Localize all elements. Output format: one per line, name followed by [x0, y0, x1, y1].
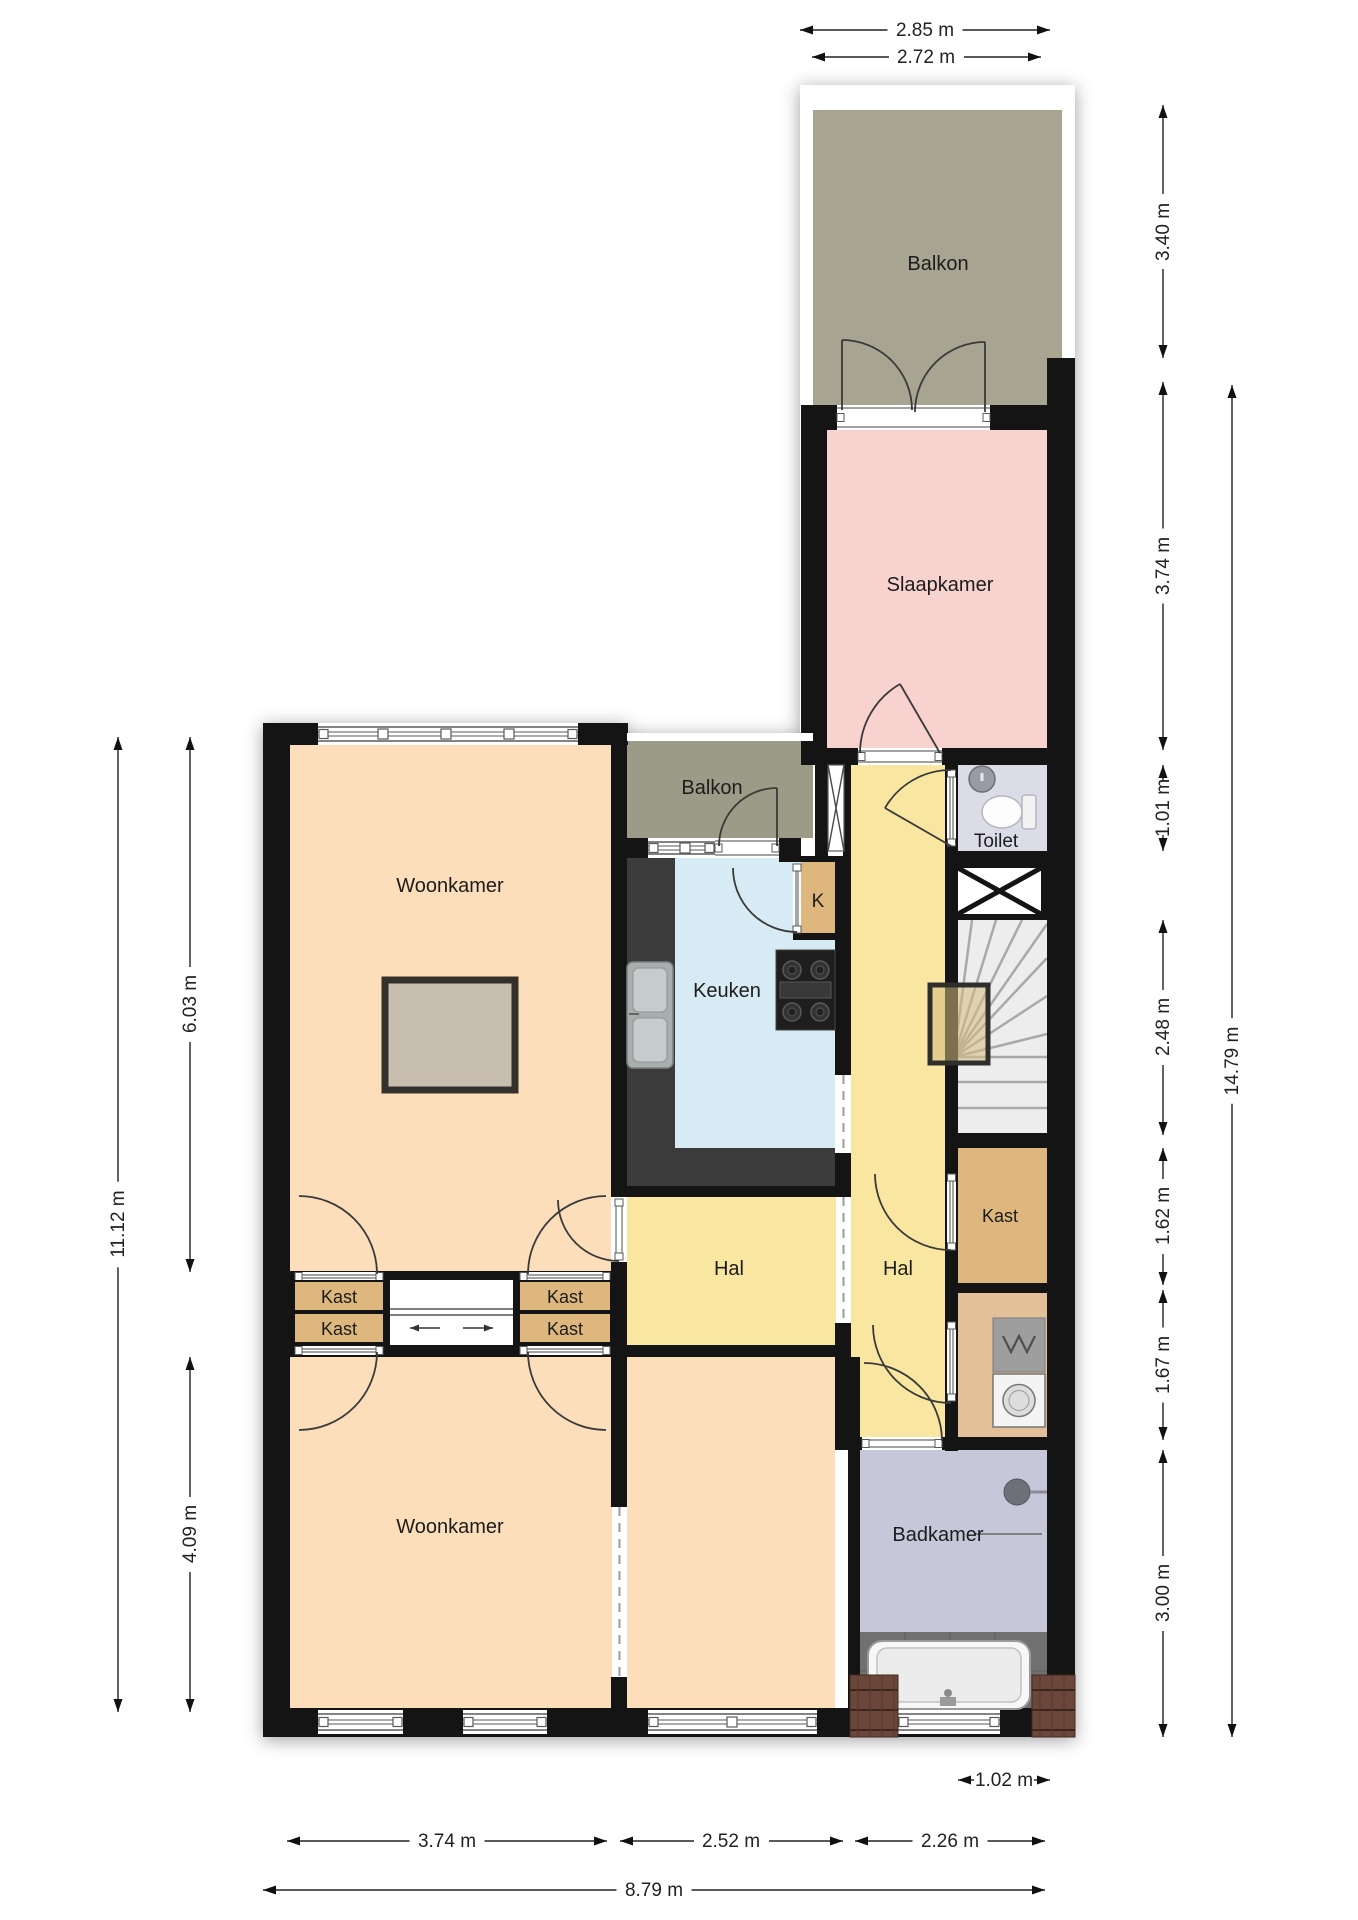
laundry-fixtures [993, 1318, 1045, 1427]
label-kast: Kast [321, 1319, 357, 1339]
door-sill [947, 1174, 956, 1250]
open-passage [836, 1197, 851, 1323]
dimension-text: 4.09 m [180, 1505, 201, 1563]
balcony-border [800, 85, 813, 405]
dimension-300m: 3.00 m [1153, 1450, 1174, 1737]
dimension-text: 2.52 m [702, 1831, 760, 1852]
dimension-text: 1.67 m [1153, 1336, 1174, 1394]
window [463, 1710, 547, 1734]
roof-tiles [850, 1675, 898, 1737]
label-kast: Kast [547, 1287, 583, 1307]
label-kast: Kast [321, 1287, 357, 1307]
dimension-text: 2.72 m [897, 47, 955, 68]
dimension-603m: 6.03 m [180, 737, 201, 1272]
wall [815, 763, 828, 858]
window [898, 1710, 1000, 1734]
dimension-1112m: 11.12 m [108, 737, 129, 1712]
window [648, 838, 715, 858]
window [318, 1710, 403, 1734]
dimension-162m: 1.62 m [1153, 1148, 1174, 1285]
balcony-border [1062, 85, 1075, 358]
door-sill [520, 1272, 610, 1281]
dimension-226m: 2.26 m [855, 1831, 1045, 1852]
balcony-border [627, 733, 813, 741]
wall [1047, 358, 1075, 1737]
rug [385, 980, 515, 1090]
wall [945, 1133, 1075, 1148]
dimension-text: 3.74 m [1153, 537, 1174, 595]
label-hal-links: Hal [714, 1258, 744, 1280]
dimension-text: 3.74 m [418, 1831, 476, 1852]
door-sill [295, 1346, 383, 1355]
wall [990, 405, 1050, 430]
label-slaapkamer: Slaapkamer [887, 574, 994, 596]
door-sill [858, 748, 942, 765]
wall [611, 723, 627, 1197]
dimension-272m: 2.72 m [812, 47, 1041, 68]
room-hal-rechts [851, 765, 945, 1437]
fixed-window [828, 765, 844, 851]
dimension-374m: 3.74 m [287, 1831, 607, 1852]
label-woonkamer-boven: Woonkamer [396, 875, 504, 897]
landing-overlay [930, 985, 988, 1063]
dimension-167m: 1.67 m [1153, 1290, 1174, 1440]
wall [945, 851, 1075, 862]
door-sill [295, 1272, 383, 1281]
wall [793, 933, 851, 940]
door-sill [715, 838, 779, 858]
dimension-285m: 2.85 m [800, 20, 1050, 41]
dimension-102m: 1.02 m [958, 1770, 1050, 1791]
label-balkon-klein: Balkon [681, 777, 742, 799]
label-kast: Kast [547, 1319, 583, 1339]
dimension-252m: 2.52 m [620, 1831, 843, 1852]
dimension-879m: 8.79 m [263, 1880, 1045, 1901]
dimension-text: 3.00 m [1153, 1564, 1174, 1622]
dimension-text: 2.85 m [896, 20, 954, 41]
window [318, 723, 578, 745]
dimension-text: 3.40 m [1153, 203, 1174, 261]
wall [801, 405, 827, 763]
label-hal-rechts: Hal [883, 1258, 913, 1280]
dimension-409m: 4.09 m [180, 1357, 201, 1712]
door-sill [837, 405, 990, 430]
wall [835, 858, 851, 1075]
open-passage [836, 1075, 851, 1153]
wall [835, 1357, 860, 1450]
label-toilet: Toilet [974, 831, 1019, 852]
floorplan-page: BalkonSlaapkamerBalkonWoonkamerKeukenKHa… [0, 0, 1358, 1920]
room-kamer-midden [627, 1357, 835, 1708]
window [648, 1710, 817, 1734]
dimension-text: 14.79 m [1222, 1027, 1243, 1096]
roof-tiles [1032, 1675, 1075, 1737]
dimension-text: 1.01 m [1153, 779, 1174, 837]
label-kast-rechts: Kast [982, 1206, 1018, 1226]
dimension-text: 2.48 m [1153, 998, 1174, 1056]
wall [611, 1186, 851, 1197]
dimension-1479m: 14.79 m [1222, 385, 1243, 1737]
wall [610, 1271, 627, 1357]
dimension-text: 2.26 m [921, 1831, 979, 1852]
wall [945, 1283, 1075, 1293]
label-woonkamer-beneden: Woonkamer [396, 1516, 504, 1538]
dimension-text: 6.03 m [180, 975, 201, 1033]
door-sill [947, 1322, 956, 1401]
dimension-text: 1.02 m [975, 1770, 1033, 1791]
dimension-text: 1.62 m [1153, 1187, 1174, 1245]
door-sill [613, 1199, 625, 1260]
label-keuken: Keuken [693, 980, 761, 1002]
balcony-border [800, 85, 1075, 110]
kitchen-counter [623, 1148, 835, 1186]
door-sill [793, 864, 801, 933]
door-sill [520, 1346, 610, 1355]
wall [627, 838, 648, 858]
dimension-340m: 3.40 m [1153, 105, 1174, 358]
wall [779, 838, 801, 858]
stove [776, 950, 835, 1030]
floorplan-drawing: BalkonSlaapkamerBalkonWoonkamerKeukenKHa… [0, 0, 1358, 1920]
dimension-248m: 2.48 m [1153, 920, 1174, 1135]
dimension-101m: 1.01 m [1153, 765, 1174, 851]
label-balkon-boven: Balkon [907, 253, 968, 275]
door-sill [862, 1437, 942, 1450]
dimension-374m: 3.74 m [1153, 382, 1174, 750]
open-passage [612, 1507, 627, 1677]
kitchen-sink [627, 962, 673, 1068]
door-sill [947, 770, 956, 846]
label-kast-k: K [812, 891, 825, 912]
dimension-text: 11.12 m [108, 1190, 129, 1257]
wall [263, 723, 290, 1737]
label-badkamer: Badkamer [892, 1524, 983, 1546]
wall [801, 405, 837, 430]
dimension-text: 8.79 m [625, 1880, 683, 1901]
